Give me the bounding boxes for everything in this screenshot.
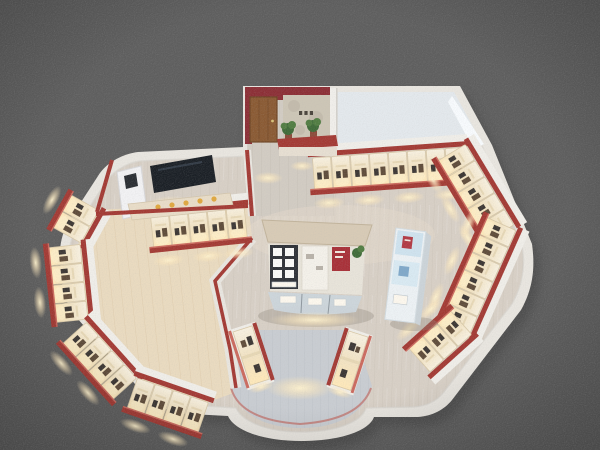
showroom-render: [0, 0, 600, 450]
scene-canvas: [0, 0, 600, 450]
film-grain: [0, 0, 600, 450]
